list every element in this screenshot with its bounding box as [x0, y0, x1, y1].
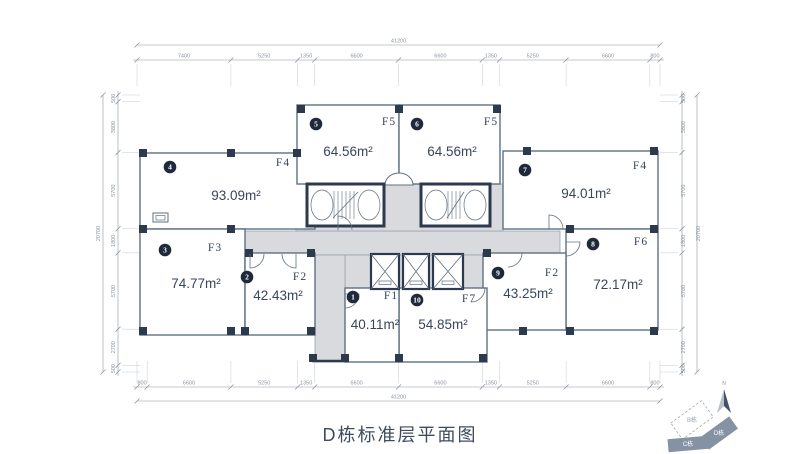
unit-code: F4: [276, 157, 290, 169]
dim-label: 500: [681, 94, 687, 103]
unit-code: F5: [484, 116, 498, 128]
dim-label: 5700: [111, 185, 117, 197]
column: [139, 225, 147, 233]
column: [241, 327, 249, 335]
dim-label: 1350: [300, 54, 312, 60]
dimension-bottom: 8006600525013506600660013505250660080041…: [133, 361, 664, 404]
dim-label: 5700: [681, 185, 687, 197]
elevator-counterweight: [442, 281, 454, 285]
elevator-2: [403, 254, 429, 289]
unit-code: F1: [384, 290, 398, 302]
unit-number: 3: [163, 246, 167, 255]
column: [650, 327, 658, 335]
dim-label: 6600: [350, 54, 362, 60]
dim-total-label: 20700: [96, 226, 102, 241]
unit-area: 74.77m²: [171, 276, 221, 291]
unit-number: 7: [523, 166, 527, 175]
dim-label: 2700: [681, 341, 687, 353]
floorplan-drawing: 7400525013506600660013505250660080041200…: [0, 0, 800, 454]
dim-total-label: 41200: [391, 395, 406, 401]
unit-number: 9: [496, 269, 500, 278]
unit-code: F6: [634, 236, 648, 248]
floorplan-canvas: 7400525013506600660013505250660080041200…: [0, 0, 800, 454]
unit-area: 43.25m²: [503, 286, 553, 301]
column: [650, 147, 658, 155]
column: [483, 249, 491, 257]
column: [341, 354, 349, 362]
unit-area: 40.11m²: [351, 317, 400, 332]
unit-number: 8: [591, 240, 595, 249]
unit-area: 64.56m²: [323, 144, 373, 159]
dim-label: 500: [111, 94, 117, 103]
unit-number: 10: [413, 296, 421, 305]
dim-label: 1800: [111, 235, 117, 247]
column: [307, 327, 315, 335]
dim-label: 800: [650, 381, 659, 387]
dim-label: 5700: [681, 285, 687, 297]
dim-label: 3800: [681, 121, 687, 133]
unit-number: 1: [351, 293, 355, 302]
unit-code: F2: [293, 271, 307, 283]
dim-label: 1350: [485, 54, 497, 60]
dimension-top: 7400525013506600660013505250660080041200: [133, 39, 664, 87]
dim-label: 800: [650, 54, 659, 60]
unit-number: 6: [415, 120, 419, 129]
column: [566, 327, 574, 335]
north-label: N: [722, 381, 726, 387]
keymap-building-label: C栋: [683, 440, 693, 448]
dim-total-label: 20700: [696, 226, 702, 241]
dim-label: 1350: [300, 381, 312, 387]
unit-area: 42.43m²: [253, 288, 303, 303]
column: [395, 354, 403, 362]
column: [493, 105, 501, 113]
dim-label: 5250: [527, 54, 539, 60]
column: [227, 225, 235, 233]
elevator-counterweight: [410, 281, 422, 285]
unit-code: F7: [462, 293, 476, 305]
staircase-2: [421, 184, 490, 226]
staircase-1: [307, 184, 384, 226]
keymap-building-label: D栋: [714, 429, 724, 437]
dim-label: 6600: [602, 54, 614, 60]
column: [566, 225, 574, 233]
wall-box: [153, 213, 168, 222]
north-arrow-right: [724, 389, 731, 413]
unit-code: F5: [382, 116, 396, 128]
drawing-title: D栋标准层平面图: [323, 421, 478, 447]
dim-label: 6600: [434, 381, 446, 387]
unit-code: F2: [545, 267, 559, 279]
dim-total-label: 41200: [391, 39, 406, 45]
dim-label: 500: [681, 364, 687, 373]
dim-label: 6600: [602, 381, 614, 387]
column: [309, 354, 317, 362]
corridor-area: [230, 231, 560, 255]
dim-label: 6600: [183, 381, 195, 387]
dimension-right: 5003800570018005700270050020700: [660, 91, 702, 376]
column: [297, 105, 305, 113]
column: [523, 147, 531, 155]
dim-label: 5700: [111, 285, 117, 297]
unit-code: F4: [633, 160, 647, 172]
column: [395, 105, 403, 113]
column: [519, 327, 527, 335]
corridor-area: [315, 255, 345, 362]
dim-label: 1350: [485, 381, 497, 387]
column: [650, 225, 658, 233]
dim-label: 500: [111, 364, 117, 373]
elevator-3: [433, 254, 463, 289]
dim-label: 5250: [258, 381, 270, 387]
column: [307, 249, 315, 257]
dim-label: 6600: [434, 54, 446, 60]
column: [227, 327, 235, 335]
column: [139, 327, 147, 335]
column: [227, 149, 235, 157]
unit-area: 94.01m²: [561, 186, 611, 201]
dim-label: 7400: [178, 54, 190, 60]
dim-label: 800: [137, 381, 146, 387]
dim-label: 5250: [258, 54, 270, 60]
unit-area: 54.85m²: [418, 317, 468, 332]
unit-number: 5: [314, 120, 318, 129]
unit-area: 64.56m²: [427, 144, 477, 159]
north-arrow-left: [717, 389, 724, 413]
unit-area: 93.09m²: [211, 188, 261, 203]
dim-label: 5250: [527, 381, 539, 387]
dim-label: 1800: [681, 235, 687, 247]
north-arrow: N: [717, 381, 731, 413]
column: [293, 149, 301, 157]
unit-number: 4: [168, 163, 172, 172]
column: [245, 249, 253, 257]
unit-code: F3: [208, 242, 222, 254]
dim-label: 2700: [111, 341, 117, 353]
column: [479, 354, 487, 362]
column: [139, 149, 147, 157]
elevator-counterweight: [379, 281, 391, 285]
dim-label: 6600: [350, 381, 362, 387]
unit-area: 72.17m²: [593, 277, 643, 292]
unit-number: 2: [245, 273, 249, 282]
elevator-1: [371, 254, 399, 289]
keymap-building-label: B栋: [687, 416, 697, 424]
dim-label: 3800: [111, 121, 117, 133]
dimension-left: 5003800570018005700270050020700: [96, 91, 140, 376]
